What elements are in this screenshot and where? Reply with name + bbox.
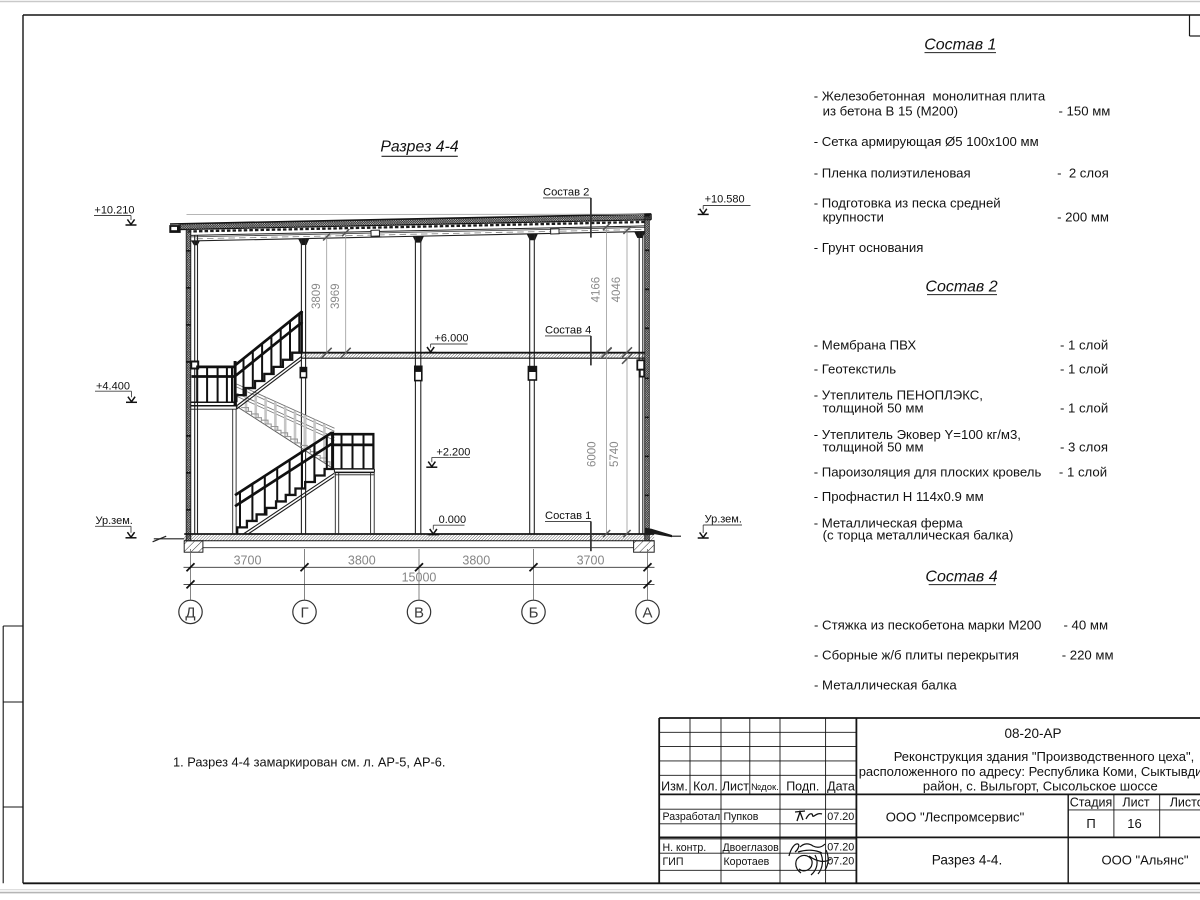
- svg-text:+2.200: +2.200: [436, 446, 470, 458]
- svg-text:+4.400: +4.400: [96, 380, 130, 392]
- svg-text:Кол.: Кол.: [693, 779, 718, 793]
- svg-text:16: 16: [1127, 816, 1141, 831]
- svg-text:- 40 мм: - 40 мм: [1064, 618, 1109, 633]
- svg-text:№док.: №док.: [751, 782, 779, 793]
- svg-text:- Геотекстиль: - Геотекстиль: [814, 361, 897, 376]
- svg-text:Б: Б: [529, 604, 539, 621]
- svg-text:3969: 3969: [330, 283, 342, 309]
- svg-text:- 1 слой: - 1 слой: [1060, 361, 1108, 376]
- svg-text:Состав 4: Состав 4: [545, 324, 591, 336]
- svg-text:- Стяжка из пескобетона марки: - Стяжка из пескобетона марки М200: [814, 618, 1041, 633]
- svg-text:Состав 1: Состав 1: [545, 510, 591, 522]
- svg-text:Лист: Лист: [722, 779, 749, 793]
- svg-text:Реконструкция здания "Производ: Реконструкция здания "Производственного …: [894, 749, 1195, 764]
- svg-text:район, с. Выльгорт, Сысольское: район, с. Выльгорт, Сысольское шоссе: [923, 779, 1158, 794]
- svg-text:А: А: [642, 604, 652, 621]
- svg-text:3809: 3809: [311, 283, 323, 309]
- svg-text:5740: 5740: [609, 441, 621, 467]
- svg-text:- Мембрана ПВХ: - Мембрана ПВХ: [814, 337, 917, 352]
- svg-text:- 200 мм: - 200 мм: [1057, 210, 1109, 225]
- svg-text:07.20: 07.20: [827, 841, 854, 853]
- svg-text:Листов: Листов: [1170, 795, 1200, 809]
- svg-text:расположенного по адресу: Респ: расположенного по адресу: Республика Ком…: [859, 764, 1200, 779]
- svg-text:- Профнастил Н 114х0.9 мм: - Профнастил Н 114х0.9 мм: [814, 489, 984, 504]
- svg-text:0.000: 0.000: [439, 514, 467, 526]
- svg-text:Н. контр.: Н. контр.: [663, 842, 707, 854]
- svg-text:- Металлическая балка: - Металлическая балка: [814, 678, 957, 693]
- svg-text:В: В: [414, 604, 424, 621]
- svg-text:07.20: 07.20: [827, 855, 854, 867]
- svg-text:Разрез 4-4.: Разрез 4-4.: [932, 853, 1003, 868]
- svg-text:Состав 1: Состав 1: [924, 37, 996, 54]
- svg-text:Состав 4: Состав 4: [925, 569, 997, 586]
- svg-text:Состав 2: Состав 2: [543, 186, 589, 198]
- svg-text:- 3 слоя: - 3 слоя: [1060, 440, 1108, 455]
- svg-text:6000: 6000: [587, 441, 599, 467]
- svg-text:4166: 4166: [590, 277, 602, 303]
- svg-text:Двоеглазов: Двоеглазов: [723, 842, 780, 854]
- svg-text:- Подготовка из песка средней: - Подготовка из песка средней: [814, 196, 1001, 211]
- svg-text:Г: Г: [300, 604, 308, 621]
- svg-text:- Сборные ж/б плиты перекрытия: - Сборные ж/б плиты перекрытия: [814, 647, 1019, 662]
- svg-text:Разработал: Разработал: [663, 811, 721, 823]
- svg-text:3700: 3700: [577, 554, 605, 568]
- svg-text:Лист: Лист: [1122, 795, 1149, 809]
- svg-text:+10.580: +10.580: [705, 194, 745, 206]
- svg-text:(с торца металлическая балка): (с торца металлическая балка): [823, 528, 1014, 543]
- svg-text:ООО "Альянс": ООО "Альянс": [1102, 853, 1189, 868]
- svg-text:1. Разрез 4-4 замаркирован см.: 1. Разрез 4-4 замаркирован см. л. АР-5, …: [173, 755, 445, 770]
- svg-text:Дата: Дата: [827, 779, 855, 793]
- svg-text:07.20: 07.20: [827, 811, 854, 823]
- svg-text:- Сетка армирующая Ø5 100х100: - Сетка армирующая Ø5 100х100 мм: [814, 134, 1039, 149]
- svg-text:+10.210: +10.210: [94, 204, 134, 216]
- svg-text:15000: 15000: [402, 571, 437, 585]
- svg-text:Стадия: Стадия: [1070, 795, 1113, 809]
- svg-text:- Пленка полиэтиленовая: - Пленка полиэтиленовая: [814, 166, 971, 181]
- svg-text:Коротаев: Коротаев: [724, 856, 770, 868]
- svg-text:3800: 3800: [348, 554, 376, 568]
- svg-text:- 2 слоя: - 2 слоя: [1057, 166, 1109, 181]
- svg-text:Ур.зем.: Ур.зем.: [705, 514, 742, 526]
- svg-text:- Пароизоляция для плоских кро: - Пароизоляция для плоских кровель: [814, 464, 1042, 479]
- svg-text:Состав 2: Состав 2: [925, 279, 997, 296]
- svg-text:Пупков: Пупков: [724, 811, 759, 823]
- svg-text:4046: 4046: [611, 277, 623, 303]
- svg-text:3800: 3800: [462, 554, 490, 568]
- svg-text:- 220 мм: - 220 мм: [1062, 647, 1114, 662]
- svg-text:ООО "Леспромсервис": ООО "Леспромсервис": [886, 810, 1025, 825]
- svg-text:+6.000: +6.000: [435, 333, 469, 345]
- svg-text:- 1 слой: - 1 слой: [1059, 464, 1107, 479]
- svg-text:ГИП: ГИП: [663, 856, 684, 868]
- svg-text:08-20-АР: 08-20-АР: [1004, 726, 1061, 741]
- svg-text:Подп.: Подп.: [786, 779, 819, 793]
- svg-text:Разрез 4-4: Разрез 4-4: [380, 139, 458, 156]
- svg-text:толщиной 50 мм: толщиной 50 мм: [823, 440, 924, 455]
- svg-text:Ур.зем.: Ур.зем.: [96, 515, 133, 527]
- svg-text:- 1 слой: - 1 слой: [1060, 400, 1108, 415]
- svg-text:крупности: крупности: [823, 210, 884, 225]
- svg-text:- Грунт основания: - Грунт основания: [814, 240, 924, 255]
- svg-text:3700: 3700: [234, 554, 262, 568]
- svg-text:Изм.: Изм.: [661, 779, 688, 793]
- svg-text:П: П: [1086, 816, 1095, 831]
- svg-text:из бетона В 15 (М200): из бетона В 15 (М200): [823, 104, 958, 119]
- svg-text:- Железобетонная монолитная п: - Железобетонная монолитная плита: [814, 89, 1046, 104]
- svg-text:- 1 слой: - 1 слой: [1060, 337, 1108, 352]
- svg-text:Д: Д: [185, 604, 195, 621]
- svg-text:- 150 мм: - 150 мм: [1059, 104, 1111, 119]
- svg-text:толщиной 50 мм: толщиной 50 мм: [823, 400, 924, 415]
